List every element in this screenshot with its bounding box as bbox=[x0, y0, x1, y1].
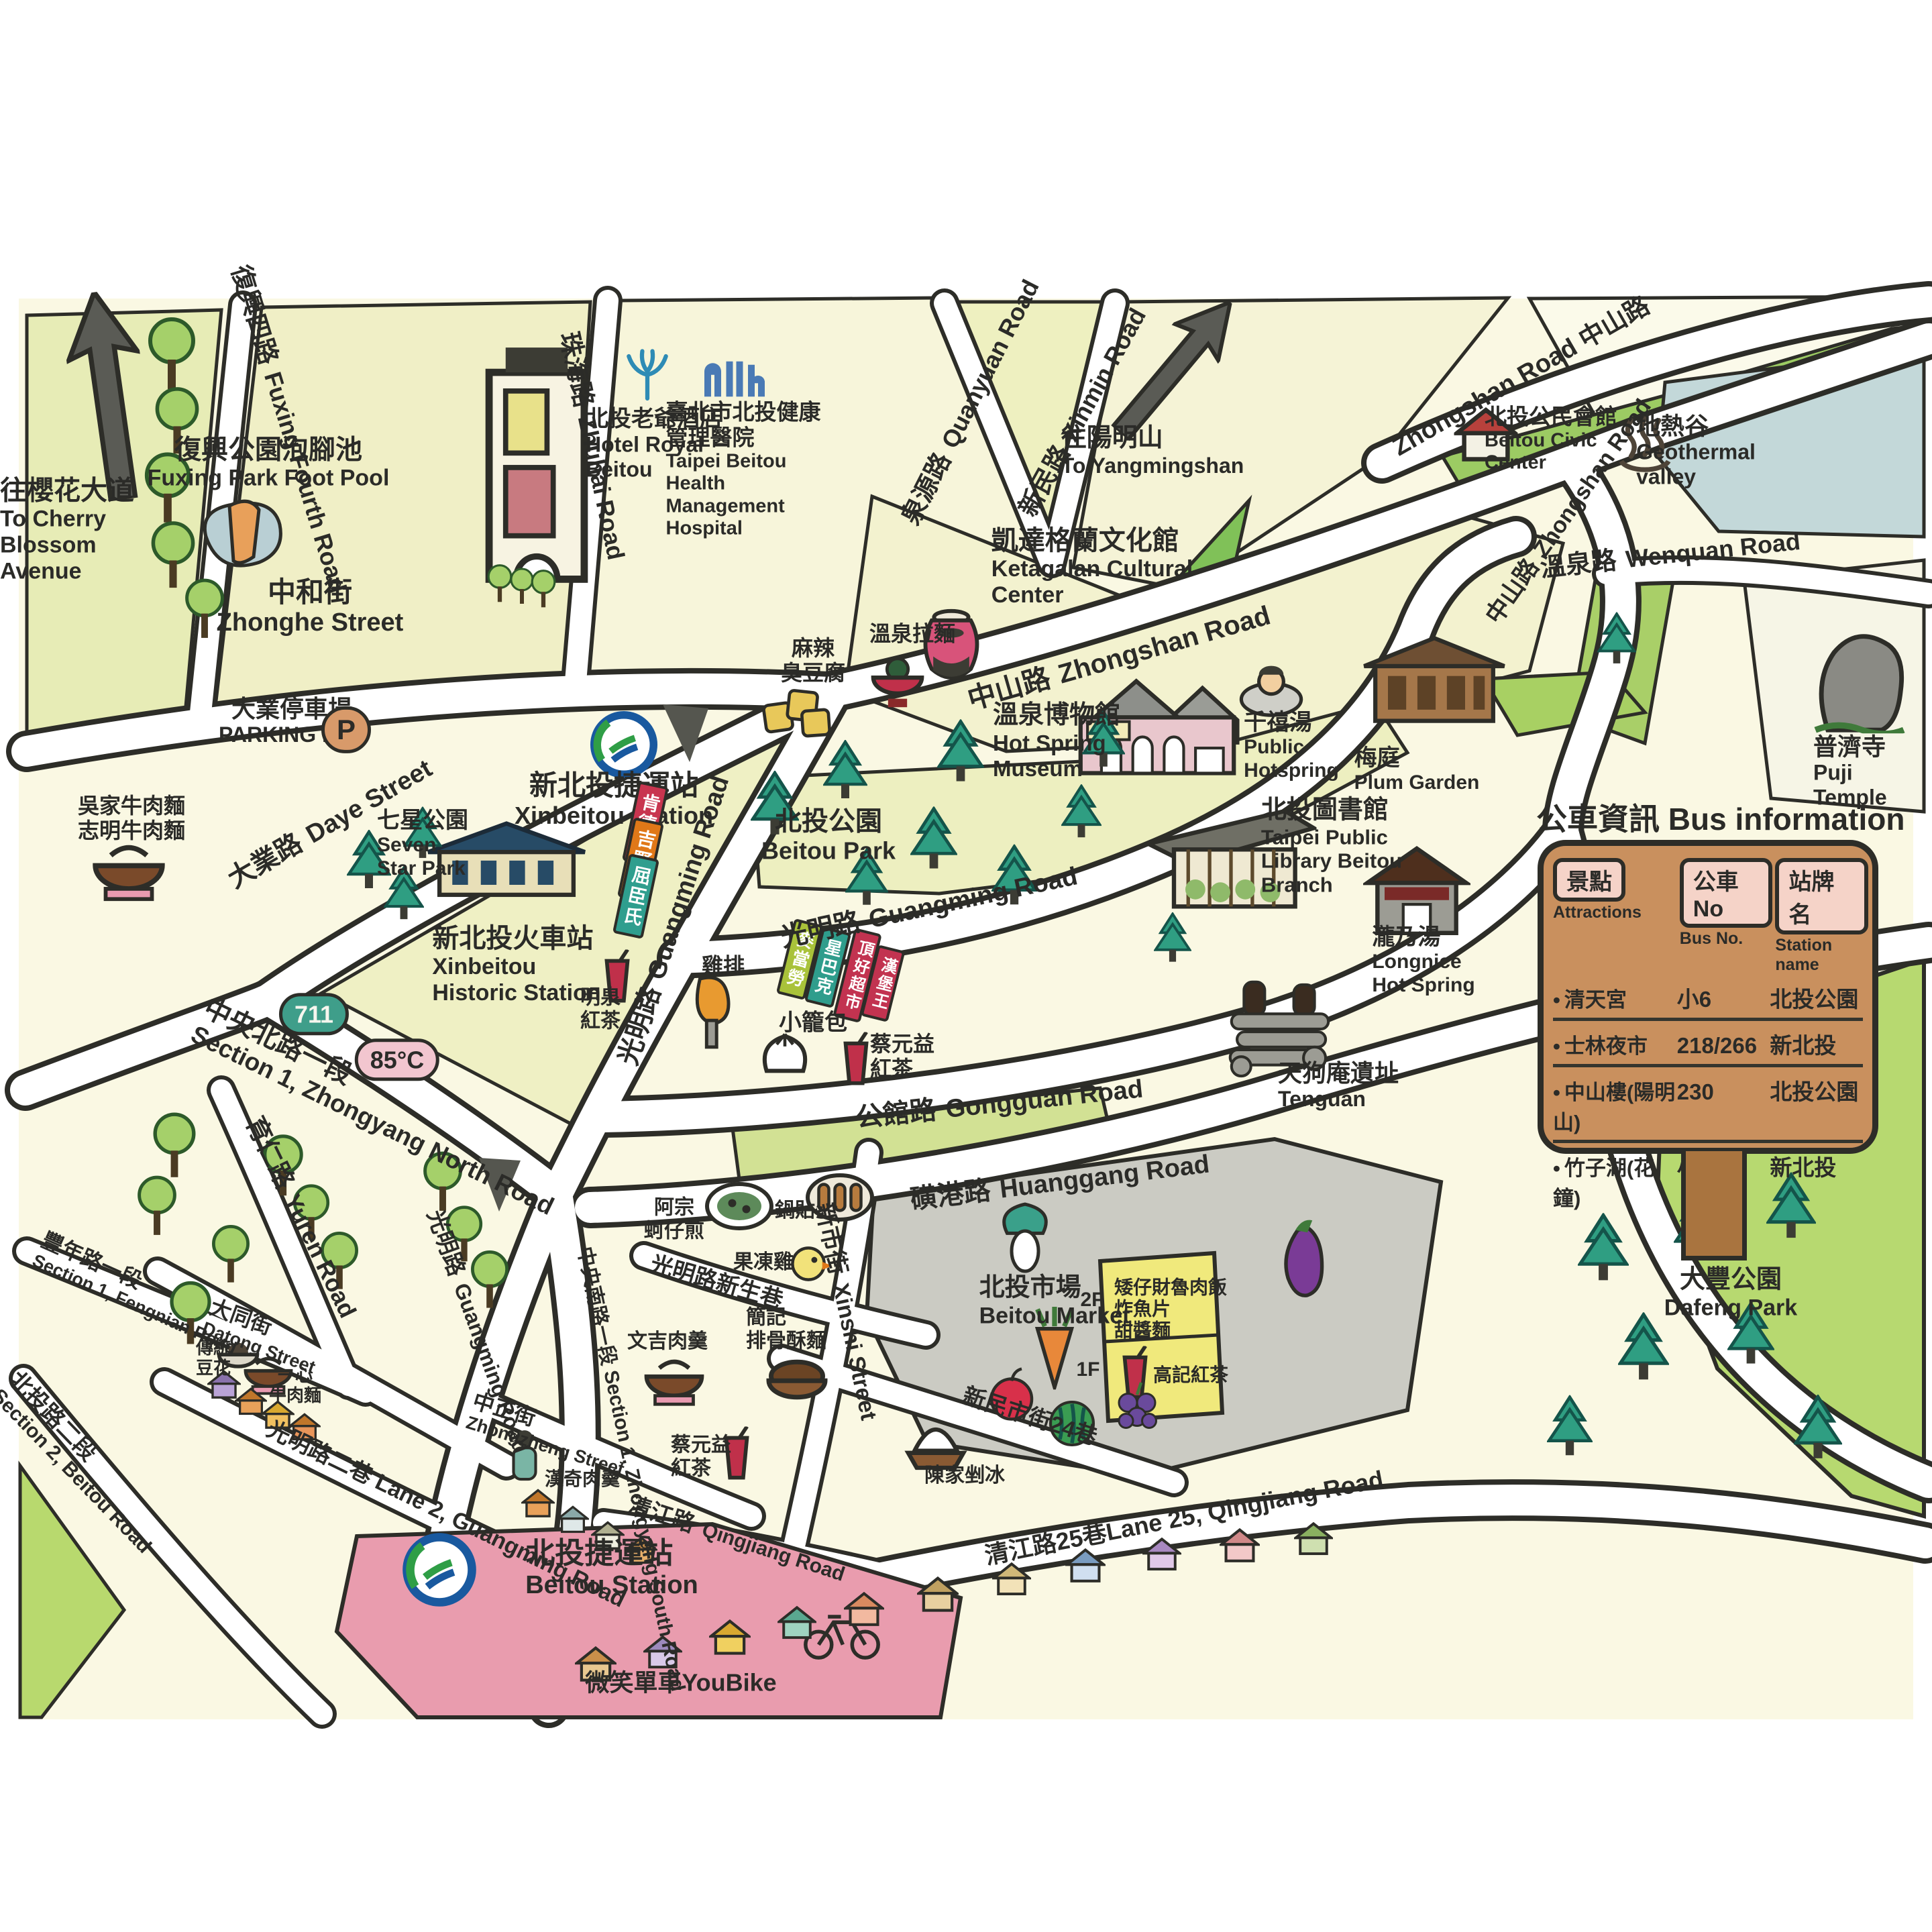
beitou-park-label-en: Beitou Park bbox=[761, 837, 896, 864]
youbike-label: 微笑單車YouBike bbox=[585, 1668, 776, 1696]
house-icon bbox=[844, 1592, 884, 1629]
road-xinshi-en: Xinshi Street bbox=[826, 1281, 881, 1422]
beitou-station-label: 北投捷運站Beitou Station bbox=[525, 1537, 698, 1600]
bus-station: 新北投 bbox=[1770, 1028, 1863, 1060]
hot-spring-museum-label-en: Hot Spring Museum bbox=[993, 731, 1120, 782]
road-zhonghe-en: Zhonghe Street bbox=[217, 608, 404, 638]
foot-pool-icon bbox=[193, 496, 293, 570]
bus-col-busno-zh: 公車No bbox=[1680, 858, 1773, 928]
bus-number: 218/266 bbox=[1677, 1033, 1770, 1059]
road-gongguan: 公館路Gongguan Road bbox=[855, 1073, 1144, 1134]
market-1f-gaoji-label-zh: 高記紅茶 bbox=[1153, 1364, 1228, 1386]
road-beitou-2: 北投路二段Section 2, Beitou Road bbox=[0, 1366, 174, 1558]
wujia-beef-noodle-label: 吳家牛肉麵 志明牛肉麵 bbox=[78, 794, 185, 843]
pine-tree-icon bbox=[1794, 1395, 1842, 1460]
round-tree-icon bbox=[529, 570, 557, 609]
hot-spring-museum-label: 溫泉博物館Hot Spring Museum bbox=[993, 701, 1120, 782]
mingquan-tea-label: 明泉 紅茶 bbox=[580, 987, 621, 1033]
ketagalan-label-en: Ketagalan Cultural Center bbox=[991, 556, 1193, 608]
xinbeitou-station-label-en: Xinbeitou Station bbox=[515, 802, 713, 829]
fried-chicken-label: 雞排 bbox=[702, 954, 745, 979]
hospital-logo-icon bbox=[701, 358, 768, 400]
road-huanggang: 磺港路Huanggang Road bbox=[909, 1148, 1212, 1216]
bus-attraction: 中山樓(陽明山) bbox=[1553, 1075, 1677, 1136]
market-1f-gaoji-label: 高記紅茶 bbox=[1153, 1364, 1228, 1386]
library-label-zh: 北投圖書館 bbox=[1261, 796, 1402, 826]
road-zhonghe: 中和街Zhonghe Street bbox=[217, 576, 404, 638]
puji-rock-icon bbox=[1809, 625, 1910, 733]
youbike-label-zh: 微笑單車YouBike bbox=[585, 1668, 776, 1696]
wenji-label: 文吉肉羹 bbox=[627, 1330, 708, 1354]
xiaolongbao-label-zh: 小籠包 bbox=[779, 1010, 847, 1036]
road-quanyuan-en: Quanyuan Road bbox=[936, 275, 1044, 453]
road-zhonghe-zh: 中和街 bbox=[217, 576, 404, 608]
bus-row: 清天宮 小6 北投公園 bbox=[1553, 975, 1863, 1021]
public-hotspring-label-zh: 千禧湯 bbox=[1244, 710, 1339, 736]
hospital-label-en: Taipei Beitou Health Management Hospital bbox=[666, 450, 821, 539]
bus-attraction: 竹子湖(花鐘) bbox=[1553, 1151, 1677, 1212]
house-icon bbox=[557, 1505, 589, 1535]
bus-station: 北投公園 bbox=[1770, 981, 1863, 1014]
road-fuxing-fourth-zh: 復興四路 bbox=[225, 262, 282, 368]
bus-attraction: 士林夜市 bbox=[1553, 1029, 1677, 1059]
pine-tree-icon bbox=[1618, 1312, 1669, 1382]
house-icon bbox=[709, 1619, 751, 1657]
round-tree-icon bbox=[135, 1175, 179, 1237]
bus-title-en: Bus information bbox=[1668, 802, 1905, 837]
pine-tree-icon bbox=[1578, 1213, 1629, 1283]
ketagalan-label: 凱達格蘭文化館Ketagalan Cultural Center bbox=[991, 525, 1193, 608]
bus-number: 小6 bbox=[1677, 981, 1770, 1014]
road-wenquan-en: Wenquan Road bbox=[1624, 527, 1801, 573]
pine-tree-icon bbox=[1597, 612, 1636, 665]
parking-p-badge: P bbox=[321, 706, 371, 753]
cabbage-icon bbox=[991, 1202, 1059, 1274]
bus-row: 士林夜市 218/266 新北投 bbox=[1553, 1021, 1863, 1067]
beef-noodle-bowl-icon bbox=[91, 843, 168, 902]
road-huanggang-en: Huanggang Road bbox=[998, 1150, 1212, 1205]
plum-garden-label-zh: 梅庭 bbox=[1354, 745, 1480, 771]
seven-star-park-label-en: Seven Star Park bbox=[377, 834, 468, 880]
wenji-label-zh: 文吉肉羹 bbox=[627, 1330, 708, 1354]
road-gongguan-zh: 公館路 bbox=[855, 1095, 938, 1134]
house-icon bbox=[917, 1576, 959, 1614]
road-gongguan-en: Gongguan Road bbox=[945, 1075, 1144, 1124]
oyster-omelet-icon bbox=[704, 1181, 775, 1232]
bus-sign-post bbox=[1681, 1151, 1747, 1260]
road-zhongshan-right-zh: 中山路 bbox=[1480, 553, 1544, 629]
bus-station: 北投公園 bbox=[1770, 1074, 1863, 1106]
longnice-label: 瀧乃湯Longnice Hot Spring bbox=[1372, 924, 1474, 997]
floor-1f-label-zh: 1F bbox=[1076, 1358, 1099, 1382]
mala-stinky-tofu-label-zh: 麻辣 臭豆腐 bbox=[781, 636, 845, 686]
wenquan-ramen-label-zh: 溫泉拉麵 bbox=[869, 622, 955, 647]
fuxing-foot-pool-label-zh: 復興公園泡腳池 bbox=[148, 434, 390, 465]
shaved-ice-icon bbox=[904, 1413, 968, 1472]
xinbeitou-historic-label-en: Xinbeitou Historic Station bbox=[432, 954, 600, 1006]
bus-information-sign: 景點 Attractions 公車No Bus No. 站牌名 Station … bbox=[1538, 840, 1878, 1154]
house-icon bbox=[1065, 1548, 1106, 1585]
shop-watsons: 屈臣氏 bbox=[612, 853, 659, 939]
xinbeitou-historic-label-zh: 新北投火車站 bbox=[432, 923, 600, 954]
mrt-logo-beitou-icon bbox=[401, 1532, 478, 1609]
wujia-beef-noodle-label-zh: 吳家牛肉麵 志明牛肉麵 bbox=[78, 794, 185, 843]
shop-burger-king-zh: 漢堡王 bbox=[869, 955, 898, 1012]
floor-2f-label-zh: 2F bbox=[1080, 1289, 1104, 1312]
azong-oyster-label-zh: 阿宗 蚵仔煎 bbox=[644, 1197, 704, 1243]
puji-temple-label-zh: 普濟寺 bbox=[1813, 733, 1892, 761]
beitou-station-label-en: Beitou Station bbox=[525, 1570, 698, 1600]
civic-center-label-zh: 北投公民會館 bbox=[1485, 405, 1617, 430]
road-beitou-2-en: Section 2, Beitou Road bbox=[0, 1385, 156, 1558]
beitou-park-label-zh: 北投公園 bbox=[761, 806, 896, 837]
road-guangming-center-en: Guangming Road bbox=[866, 862, 1080, 935]
jelly-chicken-label: 果凍雞 bbox=[733, 1251, 794, 1275]
market-2f-menu-label-zh: 矮仔財魯肉飯 炸魚片 甜醬麵 bbox=[1114, 1277, 1227, 1342]
beitou-market-label: 北投市場Beitou Market bbox=[979, 1274, 1130, 1330]
geothermal-label-en: Geothermal valley bbox=[1636, 440, 1756, 490]
road-zhongyang-north: 中央北路一段Section 1, Zhongyang North Road bbox=[186, 993, 572, 1222]
ketagalan-label-zh: 凱達格蘭文化館 bbox=[991, 525, 1193, 556]
beitou-market-label-zh: 北投市場 bbox=[979, 1274, 1130, 1303]
floor-1f-label: 1F bbox=[1076, 1358, 1099, 1382]
hospital-label-zh: 臺北市北投健康 管理醫院 bbox=[666, 399, 821, 450]
caiyuanyi-tea-2-label: 蔡元益 紅茶 bbox=[671, 1434, 731, 1481]
plum-garden-label-en: Plum Garden bbox=[1354, 771, 1480, 795]
bus-col-attractions-zh: 景點 bbox=[1553, 858, 1625, 902]
wenquan-ramen-label: 溫泉拉麵 bbox=[869, 622, 955, 647]
azong-oyster-label: 阿宗 蚵仔煎 bbox=[644, 1197, 704, 1243]
caiyuanyi-tea-1-label: 蔡元益 紅茶 bbox=[870, 1032, 934, 1081]
bus-col-busno-en: Bus No. bbox=[1680, 929, 1773, 949]
hospital-label: 臺北市北投健康 管理醫院Taipei Beitou Health Managem… bbox=[666, 399, 821, 539]
public-hotspring-label-en: Public Hotspring bbox=[1244, 736, 1339, 782]
public-hotspring-label: 千禧湯Public Hotspring bbox=[1244, 710, 1339, 782]
to-cherry-blossom-label-en: To Cherry Blossom Avenue bbox=[0, 506, 134, 584]
xinbeitou-station-label: 新北投捷運站Xinbeitou Station bbox=[515, 769, 713, 830]
dafeng-park-label: 大豐公園Dafeng Park bbox=[1664, 1266, 1797, 1322]
fried-chicken-label-zh: 雞排 bbox=[702, 954, 745, 979]
ketagalan-pot-icon bbox=[916, 606, 987, 692]
floor-2f-label: 2F bbox=[1080, 1289, 1104, 1312]
road-daye-zh: 大業路 bbox=[223, 828, 308, 895]
bus-col-station-en: Station name bbox=[1775, 936, 1868, 975]
yixin-label: 一心 牛肉麵 bbox=[269, 1366, 321, 1406]
beitou-illustrated-map: 往櫻花大道To Cherry Blossom Avenue復興四路Fuxing … bbox=[0, 0, 1932, 1932]
longnice-label-en: Longnice Hot Spring bbox=[1372, 951, 1474, 997]
douhua-label-zh: 傳統 豆花 bbox=[196, 1338, 231, 1379]
yixin-label-zh: 一心 牛肉麵 bbox=[269, 1366, 321, 1406]
chenjia-ice-label: 陳家剉冰 bbox=[924, 1464, 1005, 1488]
road-quanyuan-zh: 泉源路 bbox=[897, 448, 958, 529]
jianji-bowl-icon bbox=[762, 1357, 833, 1407]
mala-stinky-tofu-label: 麻辣 臭豆腐 bbox=[781, 636, 845, 686]
to-cherry-blossom-label: 往櫻花大道To Cherry Blossom Avenue bbox=[0, 475, 134, 584]
bus-col-station-zh: 站牌名 bbox=[1775, 858, 1868, 934]
grapes-icon bbox=[1112, 1381, 1163, 1437]
round-tree-icon bbox=[150, 1112, 199, 1180]
to-yangmingshan-label-en: To Yangmingshan bbox=[1061, 453, 1244, 478]
bus-number: 230 bbox=[1677, 1079, 1770, 1105]
bus-information-title: 公車資訊 Bus information bbox=[1536, 795, 1912, 839]
to-cherry-blossom-label-zh: 往櫻花大道 bbox=[0, 475, 134, 506]
jianji-label-zh: 簡記 排骨酥麵 bbox=[746, 1307, 826, 1353]
fuxing-foot-pool-label-en: Fuxing Park Foot Pool bbox=[148, 465, 390, 491]
shop-watsons-zh: 屈臣氏 bbox=[621, 864, 652, 929]
bus-station: 新北投 bbox=[1770, 1150, 1863, 1182]
tea-cup-icon-1 bbox=[840, 1032, 872, 1085]
hot-spring-museum-label-zh: 溫泉博物館 bbox=[993, 701, 1120, 731]
bus-title-zh: 公車資訊 bbox=[1536, 802, 1660, 837]
road-huanggang-zh: 磺港路 bbox=[909, 1175, 993, 1216]
round-tree-icon bbox=[209, 1224, 252, 1285]
jianji-label: 簡記 排骨酥麵 bbox=[746, 1307, 826, 1353]
pine-tree-icon bbox=[1154, 912, 1191, 963]
hanqi-label-zh: 漢奇肉羹 bbox=[545, 1468, 620, 1490]
potsticker-label: 鍋貼 bbox=[775, 1199, 815, 1223]
library-label-en: Taipei Public Library Beitou Branch bbox=[1261, 825, 1402, 897]
seven-star-park-label-zh: 七星公園 bbox=[377, 808, 468, 834]
pine-tree-icon bbox=[823, 740, 867, 800]
mingquan-tea-label-zh: 明泉 紅茶 bbox=[580, 987, 621, 1033]
jelly-chicken-label-zh: 果凍雞 bbox=[733, 1251, 794, 1275]
dafeng-park-label-zh: 大豐公園 bbox=[1664, 1266, 1797, 1295]
geothermal-label: 地熱谷Geothermal valley bbox=[1636, 413, 1756, 490]
house-icon bbox=[1220, 1528, 1260, 1565]
pine-tree-icon bbox=[937, 719, 984, 783]
caiyuanyi-tea-1-label-zh: 蔡元益 紅茶 bbox=[870, 1032, 934, 1081]
caiyuanyi-tea-2-label-zh: 蔡元益 紅茶 bbox=[671, 1434, 731, 1481]
beitou-station-label-zh: 北投捷運站 bbox=[525, 1537, 698, 1571]
to-yangmingshan-label-zh: 往陽明山 bbox=[1061, 424, 1244, 453]
badge-711-zh: 711 bbox=[294, 1000, 333, 1028]
potsticker-label-zh: 鍋貼 bbox=[775, 1199, 815, 1223]
pine-tree-icon bbox=[1061, 784, 1102, 839]
bus-attraction: 清天宮 bbox=[1553, 983, 1677, 1013]
road-guangming-center: 光明路Guangming Road bbox=[778, 860, 1081, 953]
ramen-bowl-icon bbox=[869, 657, 926, 710]
bus-col-attractions-en: Attractions bbox=[1553, 903, 1677, 922]
market-2f-menu-label: 矮仔財魯肉飯 炸魚片 甜醬麵 bbox=[1114, 1277, 1227, 1342]
library-label: 北投圖書館Taipei Public Library Beitou Branch bbox=[1261, 796, 1402, 898]
to-yangmingshan-label: 往陽明山To Yangmingshan bbox=[1061, 424, 1244, 478]
bus-row: 中山樓(陽明山) 230 北投公園 bbox=[1553, 1067, 1863, 1143]
hotel-royal-logo-icon bbox=[618, 346, 677, 405]
road-qingjiang-en: Qingjiang Road bbox=[699, 1519, 847, 1587]
beitou-park-label: 北投公園Beitou Park bbox=[761, 806, 896, 864]
road-wenquan: 溫泉路Wenquan Road bbox=[1539, 527, 1802, 584]
eggplant-icon bbox=[1271, 1216, 1332, 1300]
pine-tree-icon bbox=[910, 806, 957, 870]
house-icon bbox=[521, 1489, 555, 1519]
tenguan-label-zh: 天狗庵遺址 bbox=[1278, 1059, 1399, 1087]
fried-chicken-icon bbox=[692, 975, 733, 1051]
beitou-market-label-en: Beitou Market bbox=[979, 1303, 1130, 1329]
round-tree-icon bbox=[145, 317, 199, 392]
douhua-label: 傳統 豆花 bbox=[196, 1338, 231, 1379]
xinbeitou-station-label-zh: 新北投捷運站 bbox=[515, 769, 713, 802]
hanqi-label: 漢奇肉羹 bbox=[545, 1468, 620, 1490]
badge-711: 711 bbox=[279, 993, 349, 1035]
road-beitou-2-zh: 北投路二段 bbox=[3, 1366, 174, 1542]
xinbeitou-historic-label: 新北投火車站Xinbeitou Historic Station bbox=[432, 923, 600, 1006]
seven-star-park-label: 七星公園Seven Star Park bbox=[377, 808, 468, 880]
xiaolongbao-label: 小籠包 bbox=[779, 1010, 847, 1036]
house-icon bbox=[777, 1606, 816, 1642]
tenguan-label: 天狗庵遺址Tenguan bbox=[1278, 1059, 1399, 1112]
chenjia-ice-label-zh: 陳家剉冰 bbox=[924, 1464, 1005, 1488]
badge-85c-zh: 85°C bbox=[370, 1046, 424, 1073]
plum-garden-house-icon bbox=[1357, 635, 1511, 727]
xiaolongbao-bun-icon bbox=[757, 1030, 814, 1079]
dafeng-park-label-en: Dafeng Park bbox=[1664, 1295, 1797, 1321]
longnice-label-zh: 瀧乃湯 bbox=[1372, 924, 1474, 951]
parking-p-badge-zh: P bbox=[337, 714, 356, 746]
fuxing-foot-pool-label: 復興公園泡腳池Fuxing Park Foot Pool bbox=[148, 434, 390, 491]
wenji-bowl-icon bbox=[643, 1358, 706, 1407]
geothermal-label-zh: 地熱谷 bbox=[1636, 413, 1756, 440]
house-icon bbox=[1294, 1522, 1333, 1558]
stinky-tofu-icon bbox=[762, 684, 833, 739]
road-zhongyang-north-zh: 中央北路一段 bbox=[199, 993, 572, 1196]
house-icon bbox=[1142, 1538, 1181, 1573]
pine-tree-icon bbox=[1547, 1395, 1593, 1458]
plum-garden-label: 梅庭Plum Garden bbox=[1354, 745, 1480, 795]
tenguan-label-en: Tenguan bbox=[1278, 1087, 1399, 1112]
